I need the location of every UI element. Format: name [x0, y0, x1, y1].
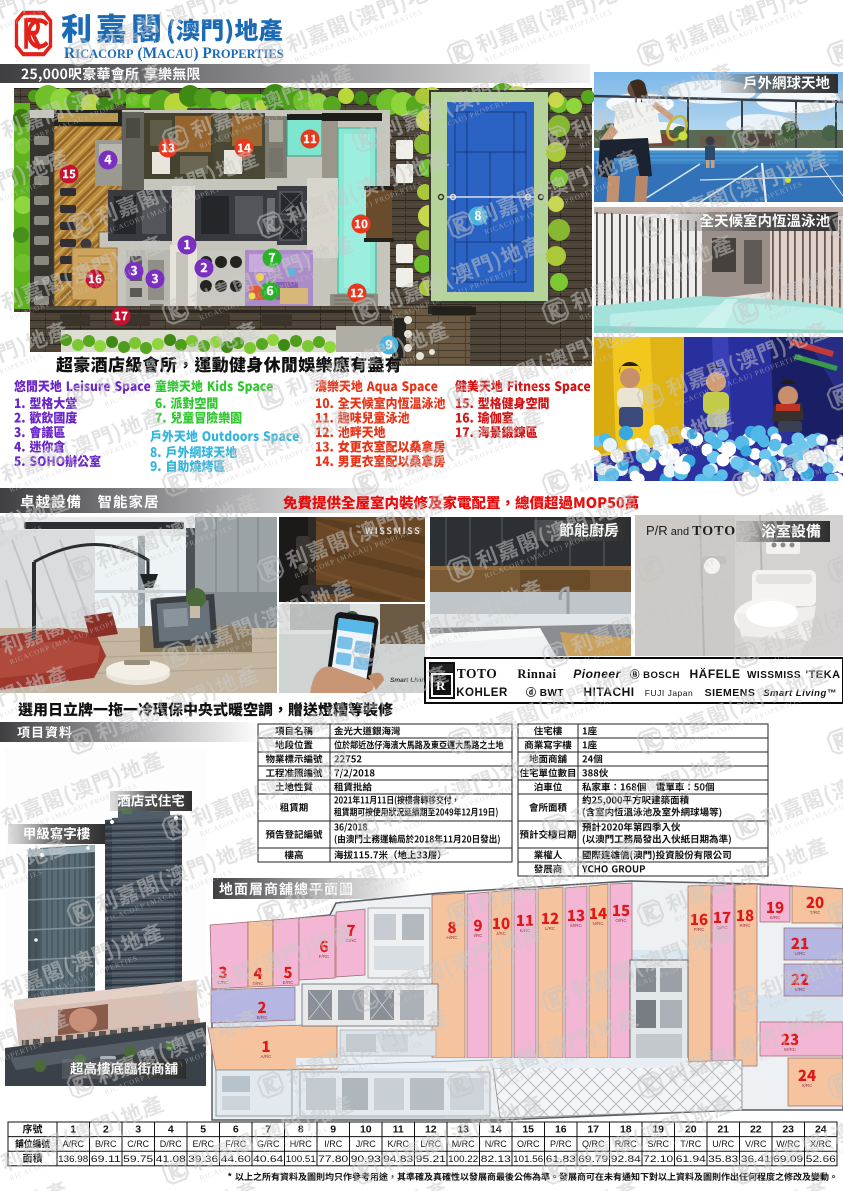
- svg-text:B/RC: B/RC: [257, 1015, 269, 1020]
- svg-text:2: 2: [103, 1124, 109, 1136]
- svg-text:RICACORP (MACAU) PROPERTIES: RICACORP (MACAU) PROPERTIES: [64, 45, 284, 62]
- svg-text:T/RC: T/RC: [810, 910, 821, 915]
- svg-text:P/RC: P/RC: [694, 927, 706, 932]
- svg-text:I/RC: I/RC: [324, 1139, 343, 1149]
- svg-text:10: 10: [360, 1124, 372, 1136]
- svg-text:77.80: 77.80: [318, 1154, 348, 1165]
- svg-text:22: 22: [750, 1124, 762, 1136]
- svg-text:9: 9: [330, 1124, 336, 1136]
- svg-text:Ⓑ BOSCH: Ⓑ BOSCH: [630, 669, 680, 681]
- svg-text:82.13: 82.13: [481, 1154, 511, 1165]
- svg-text:R/RC: R/RC: [740, 923, 752, 928]
- svg-text:A/RC: A/RC: [261, 1054, 273, 1059]
- svg-text:O/RC: O/RC: [615, 918, 627, 923]
- svg-text:HÄFELE: HÄFELE: [690, 666, 741, 681]
- svg-text:TOTO: TOTO: [457, 666, 498, 681]
- svg-text:15: 15: [522, 1124, 534, 1136]
- svg-text:4: 4: [168, 1124, 174, 1136]
- svg-text:17: 17: [587, 1124, 599, 1136]
- svg-text:U/RC: U/RC: [795, 951, 807, 956]
- svg-text:V/RC: V/RC: [745, 1139, 767, 1149]
- svg-text:23: 23: [782, 1124, 794, 1136]
- svg-text:N/RC: N/RC: [593, 921, 605, 926]
- svg-text:S/RC: S/RC: [770, 915, 782, 920]
- svg-text:35.83: 35.83: [708, 1154, 738, 1165]
- svg-text:59.75: 59.75: [123, 1154, 153, 1165]
- svg-text:C/RC: C/RC: [127, 1139, 149, 1149]
- svg-text:Rinnai: Rinnai: [517, 667, 556, 681]
- svg-text:100.51: 100.51: [286, 1154, 316, 1165]
- svg-text:101.56: 101.56: [513, 1154, 543, 1165]
- svg-text:6: 6: [233, 1124, 239, 1136]
- svg-text:O/RC: O/RC: [517, 1139, 540, 1149]
- svg-text:16: 16: [555, 1124, 567, 1136]
- svg-text:D/RC: D/RC: [160, 1139, 182, 1149]
- svg-text:U/RC: U/RC: [712, 1139, 734, 1149]
- svg-text:X/RC: X/RC: [802, 1083, 814, 1088]
- svg-text:M/RC: M/RC: [570, 923, 582, 928]
- svg-text:E/RC: E/RC: [283, 980, 295, 985]
- svg-text:I/RC: I/RC: [474, 933, 484, 938]
- svg-text:H/RC: H/RC: [447, 935, 459, 940]
- svg-text:KOHLER: KOHLER: [456, 687, 508, 699]
- svg-text:J/RC: J/RC: [356, 1139, 377, 1149]
- svg-text:L/RC: L/RC: [545, 926, 556, 931]
- svg-text:J/RC: J/RC: [496, 931, 507, 936]
- svg-text:5: 5: [200, 1124, 206, 1136]
- svg-text:FUJI Japan: FUJI Japan: [645, 688, 693, 698]
- svg-text:61.94: 61.94: [676, 1154, 706, 1165]
- svg-text:K/RC: K/RC: [387, 1139, 409, 1149]
- svg-text:69.11: 69.11: [91, 1154, 121, 1165]
- svg-text:21: 21: [717, 1124, 729, 1136]
- svg-text:P/RC: P/RC: [550, 1139, 572, 1149]
- svg-text:11: 11: [393, 1124, 404, 1136]
